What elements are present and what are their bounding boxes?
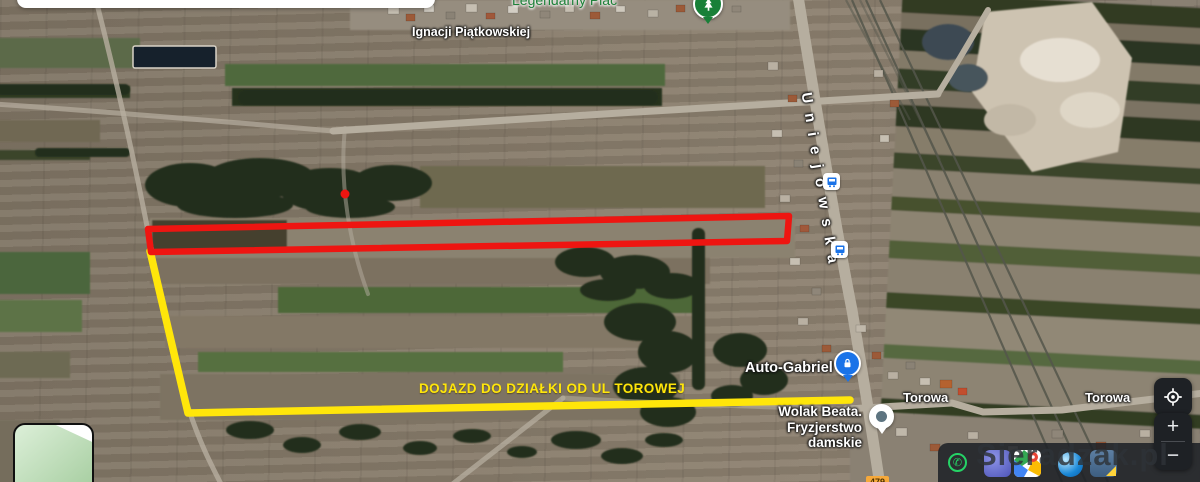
poi-label-legendarny-plac[interactable]: Legendarny Plac — [512, 0, 617, 8]
wolak-beata-pin[interactable] — [869, 404, 894, 434]
poi-label-wolak-beata[interactable]: Wolak Beata. Fryzjerstwo damskie — [730, 404, 862, 451]
cropped-search-card — [17, 0, 435, 8]
pin-pointer — [703, 17, 713, 24]
pin-pointer — [843, 375, 853, 382]
padlock-icon — [834, 350, 861, 377]
street-label-torowa-2: Torowa — [1085, 390, 1130, 405]
crosshair-icon — [1163, 387, 1183, 407]
bus-icon — [826, 176, 838, 188]
zoom-control: + − — [1154, 413, 1192, 470]
street-label-ignacji-piatkowskiej: Ignacji Piątkowskiej — [412, 25, 530, 39]
zoom-in-button[interactable]: + — [1154, 413, 1192, 441]
my-location-button[interactable] — [1154, 378, 1192, 416]
zoom-out-button[interactable]: − — [1154, 442, 1192, 470]
pin-pointer — [877, 427, 887, 434]
taskbar-app-icon-browser[interactable] — [1058, 452, 1083, 477]
taskbar-app-icon-maps[interactable] — [1014, 450, 1041, 477]
park-pin[interactable] — [693, 0, 723, 24]
street-label-torowa-1: Torowa — [903, 390, 948, 405]
auto-gabriel-pin[interactable] — [834, 350, 861, 382]
map-inset-toggle[interactable] — [13, 423, 94, 482]
map-viewport[interactable]: DOJAZD DO DZIAŁKI OD UL TOROWEJ Legendar… — [0, 0, 1200, 482]
poi-label-wolak-line1: Wolak Beata. — [778, 404, 862, 419]
poi-label-auto-gabriel[interactable]: Auto-Gabriel — [745, 360, 833, 376]
taskbar-app-icon-purple[interactable] — [984, 450, 1011, 477]
poi-label-wolak-line2: Fryzjerstwo damskie — [787, 420, 862, 451]
satellite-imagery — [0, 0, 1200, 482]
route-caption: DOJAZD DO DZIAŁKI OD UL TOROWEJ — [419, 381, 685, 396]
maps-logo-icon — [1014, 450, 1041, 477]
bus-icon — [834, 244, 846, 256]
whatsapp-icon[interactable]: ✆ — [948, 453, 967, 472]
poi-dot-icon — [869, 404, 894, 429]
road-shield-479: 479 — [866, 476, 889, 482]
taskbar-app-icon-alert[interactable] — [1090, 450, 1117, 477]
bus-stop-icon[interactable] — [831, 241, 848, 258]
bus-stop-icon[interactable] — [823, 173, 840, 190]
